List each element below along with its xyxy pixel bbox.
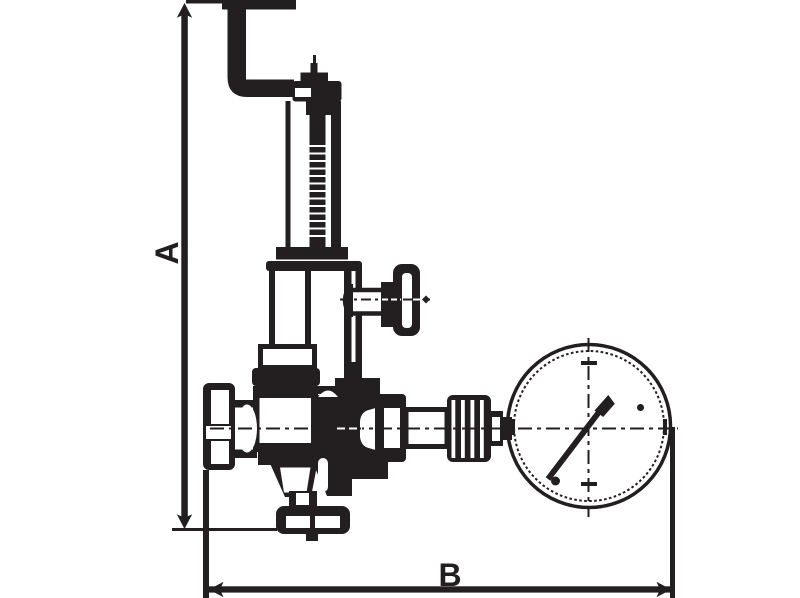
svg-text:A: A	[149, 241, 185, 264]
svg-text:B: B	[438, 557, 461, 593]
